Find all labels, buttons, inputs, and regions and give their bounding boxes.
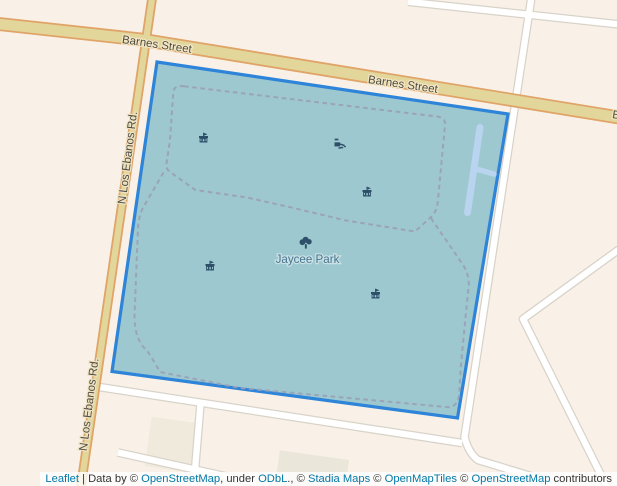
svg-text:Jaycee Park: Jaycee Park: [276, 253, 340, 266]
